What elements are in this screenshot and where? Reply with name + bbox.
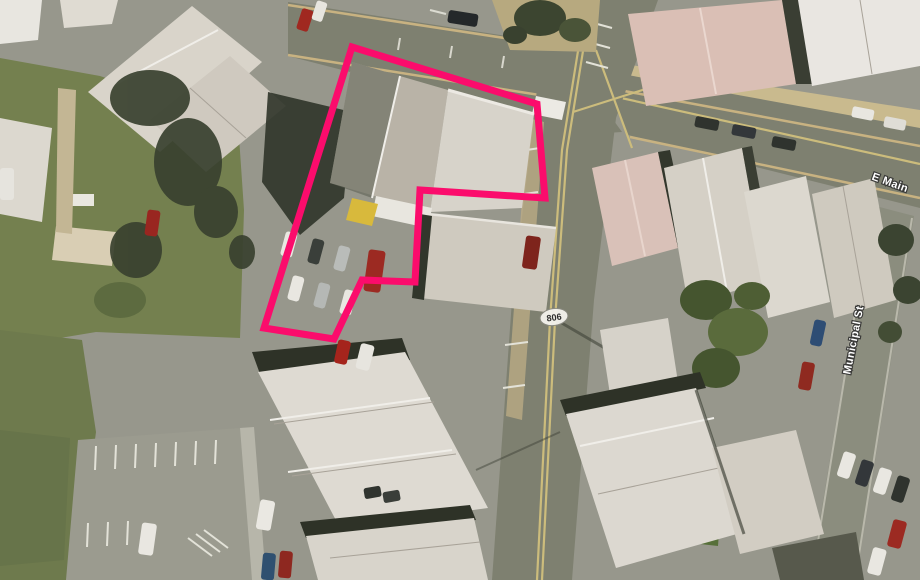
- aerial-map-view: 806 E Main Municipal St: [0, 0, 920, 580]
- car: [261, 553, 276, 580]
- aerial-photo: 806 E Main Municipal St: [0, 0, 920, 580]
- route-shield-label: 806: [546, 311, 562, 323]
- parking-lot-bottom-left: [66, 427, 266, 580]
- car: [278, 551, 293, 579]
- van: [0, 168, 14, 200]
